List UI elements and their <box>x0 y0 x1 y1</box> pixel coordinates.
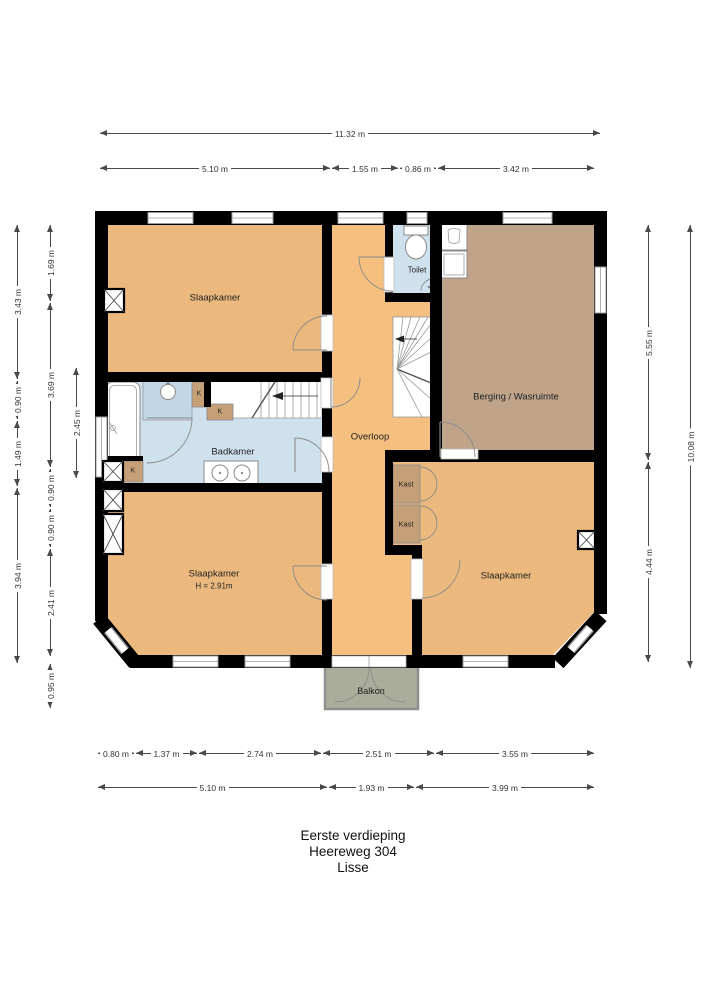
closet-kast-2 <box>393 505 420 543</box>
title-floor: Eerste verdieping <box>300 828 405 844</box>
closet-kast-1 <box>393 465 420 503</box>
washing-machine-icon <box>441 251 467 278</box>
title-block: Eerste verdieping Heereweg 304 Lisse <box>300 828 405 876</box>
title-city: Lisse <box>300 860 405 876</box>
laundry-sink-icon <box>441 224 467 250</box>
floor-plan-page: SlaapkamerToiletBerging / WasruimteOverl… <box>0 0 707 1000</box>
double-sink-icon <box>204 461 258 486</box>
toilet-icon <box>404 226 428 259</box>
closet-k-1 <box>192 382 206 407</box>
stairs-winder-icon <box>393 317 431 417</box>
room-slaapkamer-bl <box>103 492 322 655</box>
room-slaapkamer-tl <box>103 225 322 372</box>
title-street: Heereweg 304 <box>300 844 405 860</box>
closet-k-3 <box>122 461 143 482</box>
